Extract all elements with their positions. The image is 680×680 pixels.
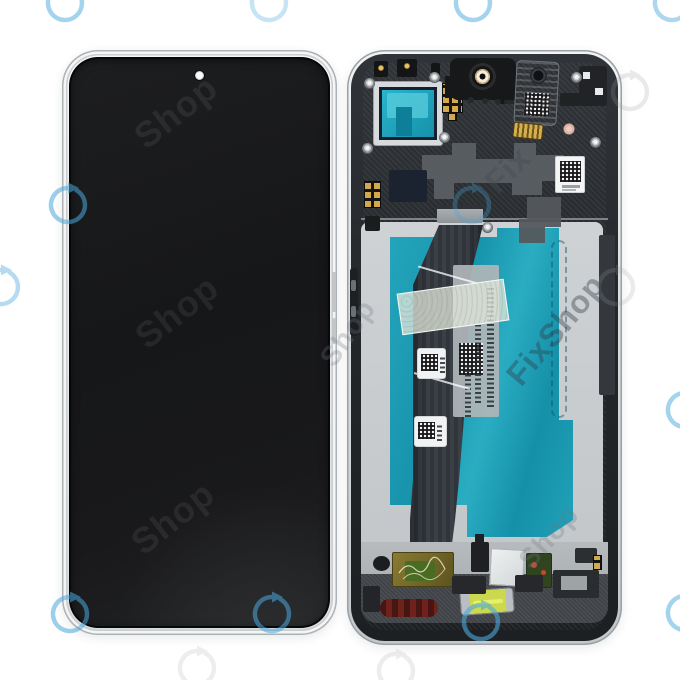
bottom-connector bbox=[475, 534, 484, 544]
punch-hole-camera bbox=[194, 70, 205, 81]
gold-contact bbox=[593, 555, 602, 570]
black-bracket bbox=[365, 216, 380, 231]
watermark-ring-icon bbox=[661, 386, 680, 434]
gold-pin bbox=[404, 63, 410, 69]
vertical-part-number bbox=[475, 325, 481, 403]
front-camera-lens bbox=[469, 63, 496, 90]
gold-pin bbox=[378, 65, 384, 71]
screw bbox=[439, 132, 450, 143]
front-camera-bracket bbox=[445, 76, 457, 98]
right-inner-band bbox=[599, 235, 615, 395]
screw bbox=[482, 222, 493, 233]
watermark-ring-icon bbox=[449, 0, 497, 27]
watermark-ring-icon bbox=[372, 647, 420, 680]
qr-code bbox=[421, 354, 438, 371]
watermark-ring-icon bbox=[245, 0, 293, 27]
label-text bbox=[440, 355, 445, 373]
black-bracket bbox=[553, 570, 599, 598]
pcb-component bbox=[531, 562, 537, 568]
camera-window-film-tab bbox=[396, 107, 412, 136]
screw bbox=[362, 143, 373, 154]
bond-wires bbox=[393, 553, 453, 586]
display-assembly-front bbox=[62, 50, 337, 635]
qr-code-label bbox=[414, 416, 447, 447]
watermark-ring-icon bbox=[648, 0, 680, 27]
microphone-hole bbox=[373, 556, 390, 571]
screw-hole bbox=[495, 99, 501, 105]
watermark-ring-icon bbox=[0, 263, 25, 311]
watermark-ring-icon bbox=[173, 644, 221, 680]
bottom-pcb bbox=[392, 552, 454, 587]
label-text-line bbox=[562, 189, 576, 191]
speaker-port bbox=[529, 67, 547, 85]
screw bbox=[590, 137, 601, 148]
speaker-datamatrix-label bbox=[524, 92, 550, 116]
watermark-ring-icon bbox=[661, 589, 680, 637]
black-bracket bbox=[452, 576, 486, 594]
side-button-slot bbox=[350, 268, 358, 336]
screw bbox=[571, 72, 582, 83]
red-gasket-seal bbox=[380, 599, 438, 617]
front-screen bbox=[69, 57, 330, 628]
qr-code-sticker bbox=[555, 156, 585, 193]
earpiece-speaker-module bbox=[513, 60, 559, 126]
black-bracket bbox=[515, 575, 543, 592]
qr-code-label bbox=[417, 348, 446, 379]
datamatrix-code bbox=[560, 161, 581, 182]
black-bracket bbox=[560, 93, 580, 106]
button-contact bbox=[351, 280, 356, 291]
bracket-cutout bbox=[595, 88, 603, 95]
screw-hole bbox=[482, 98, 488, 104]
screw bbox=[364, 78, 375, 89]
qr-code bbox=[418, 422, 435, 439]
bracket-notch bbox=[561, 576, 587, 590]
foam-pad bbox=[389, 170, 427, 202]
gold-contact-pad bbox=[448, 112, 457, 121]
display-assembly-back bbox=[347, 50, 622, 645]
adhesive-dot bbox=[563, 123, 575, 135]
side-button-seam bbox=[332, 318, 336, 344]
label-text bbox=[437, 423, 442, 441]
screw bbox=[429, 72, 440, 83]
speaker-gold-contacts bbox=[512, 121, 544, 140]
flex-cable-connector bbox=[437, 205, 483, 223]
gold-contact-coil bbox=[364, 181, 381, 208]
product-photo: ShopShopShopShopFixFixShopShop bbox=[0, 0, 680, 680]
bracket-cutout bbox=[583, 72, 590, 79]
button-contact bbox=[351, 306, 356, 317]
bottom-connector bbox=[471, 542, 489, 572]
screw-hole bbox=[468, 97, 474, 103]
watermark-ring-icon bbox=[41, 0, 89, 27]
corner-bracket bbox=[579, 66, 607, 106]
highlight bbox=[473, 599, 503, 605]
side-button-seam bbox=[332, 272, 336, 312]
vertical-part-number bbox=[465, 365, 471, 417]
black-bracket bbox=[363, 586, 380, 612]
label-text-line bbox=[562, 185, 580, 188]
